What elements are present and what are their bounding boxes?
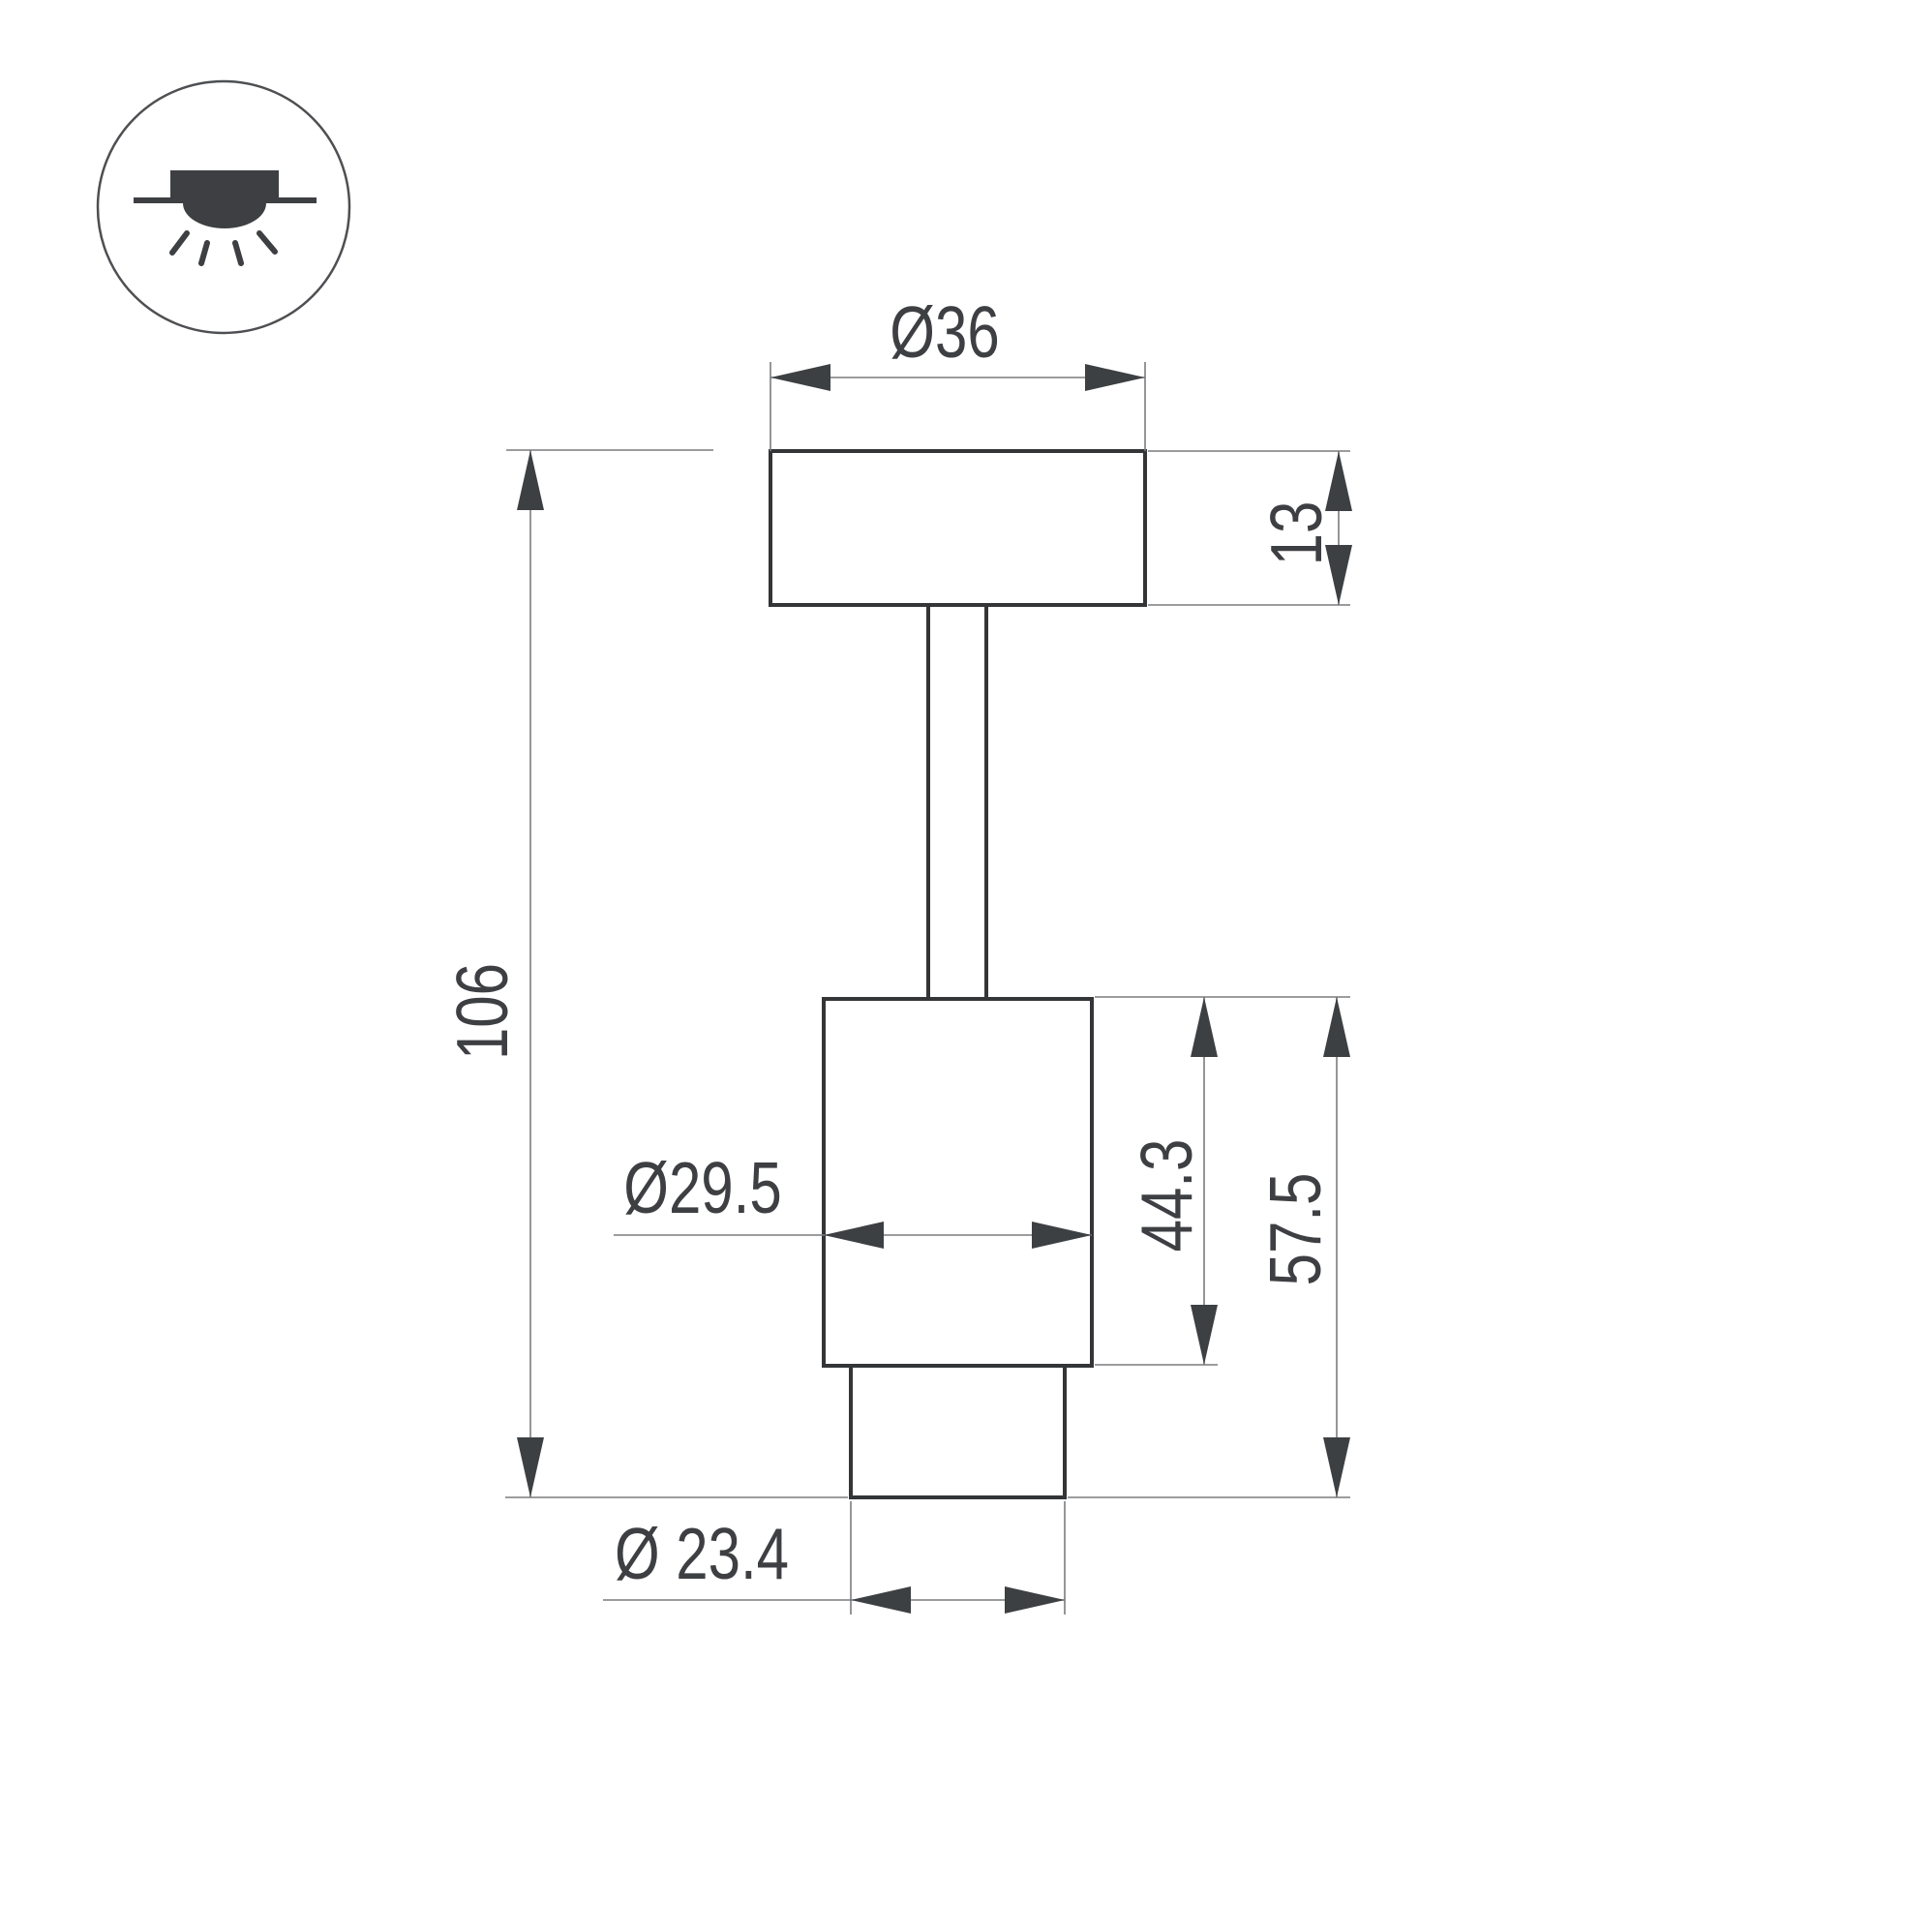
dimension-overall-height: 106 (443, 450, 848, 1497)
dimension-label-canopy-diameter: Ø36 (890, 293, 999, 374)
arrowhead-right-icon (1085, 364, 1145, 391)
technical-drawing-canvas: Ø36 13 106 Ø29.5 (0, 0, 1932, 1932)
dimension-label-lower-section-height: 57.5 (1256, 1173, 1337, 1286)
arrowhead-up-icon (517, 450, 544, 510)
arrowhead-down-icon (517, 1437, 544, 1497)
dimension-label-canopy-height: 13 (1257, 501, 1338, 566)
fixture-outline (770, 451, 1145, 1497)
icon-fixture-cap (170, 170, 279, 200)
arrowhead-down-icon (1191, 1305, 1218, 1365)
dimension-label-overall-height: 106 (443, 963, 524, 1060)
fixture-nose (851, 1366, 1065, 1497)
dimension-drawing: Ø36 13 106 Ø29.5 (0, 0, 1932, 1932)
fixture-body (824, 999, 1092, 1366)
surface-mounted-luminaire-icon (98, 81, 349, 333)
arrowhead-up-icon (1323, 997, 1350, 1057)
dimension-lower-section-height: 57.5 (1068, 997, 1350, 1497)
arrowhead-left-icon (851, 1586, 911, 1614)
dimension-label-nose-diameter: Ø 23.4 (615, 1515, 789, 1595)
arrowhead-up-icon (1191, 997, 1218, 1057)
dimension-label-body-height: 44.3 (1128, 1139, 1208, 1253)
fixture-canopy (770, 451, 1145, 605)
dimension-label-body-diameter: Ø29.5 (623, 1149, 781, 1229)
dimension-nose-diameter: Ø 23.4 (603, 1501, 1065, 1615)
arrowhead-right-icon (1005, 1586, 1065, 1614)
fixture-stem (928, 605, 986, 999)
dimension-canopy-height: 13 (1148, 451, 1352, 605)
arrowhead-down-icon (1323, 1437, 1350, 1497)
dimension-canopy-diameter: Ø36 (770, 293, 1145, 451)
icon-ceiling-line (134, 197, 317, 203)
arrowhead-left-icon (770, 364, 830, 391)
